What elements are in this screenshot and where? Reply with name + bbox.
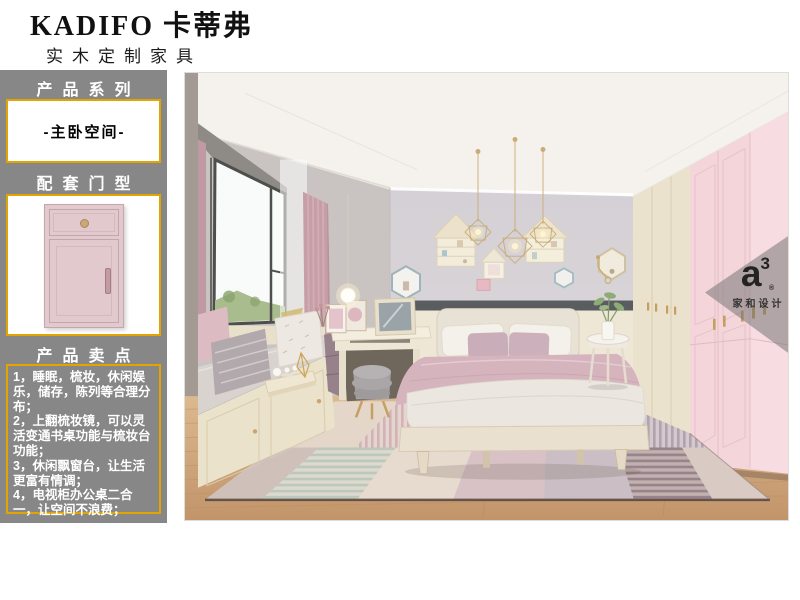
bed-shadow [405,464,641,480]
door-panel [49,239,119,323]
bed-frame [399,425,649,451]
watermark-name: 家和设计 [725,295,789,310]
window-tree [250,297,260,307]
cabinet-door-thumbnail [44,204,124,328]
designer-watermark: a3® 家和设计 [725,255,789,310]
section-title-series: 产品系列 [0,76,167,100]
window-tree [223,290,235,302]
selling-point-item: 2，上翻梳妆镜，可以灵活变通书桌功能与梳妆台功能； [13,414,154,458]
hexagon-shelf-item [403,281,409,290]
hexagon-shelf-item [610,269,615,274]
selling-points-list: 1，睡眠，梳妆，休闲娱乐，储存，陈列等合理分布； 2，上翻梳妆镜，可以灵活变通书… [6,364,161,514]
vanity-stool [352,365,392,419]
hexagon-shelf-small [555,268,573,287]
door-drawer [49,209,119,236]
selling-point-item: 3，休闲飘窗台，让生活更富有情调； [13,459,154,489]
door-handle [105,268,111,294]
watermark-logo: a3® [725,255,789,292]
product-showcase-page: KADIFO 卡蒂弗 实木定制家具 产品系列 -主卧空间- 配套门型 产品卖点 … [0,0,800,600]
bedroom-render-photo: a3® 家和设计 [184,72,789,521]
door-knob [80,219,89,228]
bed-leg [577,450,584,465]
section-title-points: 产品卖点 [0,342,167,366]
door-thumbnail-box [6,194,161,336]
product-info-panel: 产品系列 -主卧空间- 配套门型 产品卖点 1，睡眠，梳妆，休闲娱乐，储存，陈列… [0,70,167,523]
vanity-flip-mirror [374,298,415,336]
hexagon-shelf-right [599,248,625,279]
bedroom-scene [185,73,788,520]
left-curtain-strip [198,139,206,326]
selling-point-item: 1，睡眠，梳妆，休闲娱乐，储存，陈列等合理分布； [13,370,154,414]
brand-subtitle: 实木定制家具 [46,42,202,67]
pink-wall-art [477,279,490,290]
brand-title: KADIFO 卡蒂弗 [30,4,253,44]
series-value-box: -主卧空间- [6,99,161,163]
bed-leg [483,452,490,468]
selling-point-item: 4，电视柜办公桌二合一，让空间不浪费； [13,488,154,518]
vanity-leg [339,343,346,400]
pillow-mauve [468,332,509,360]
section-title-door: 配套门型 [0,170,167,194]
